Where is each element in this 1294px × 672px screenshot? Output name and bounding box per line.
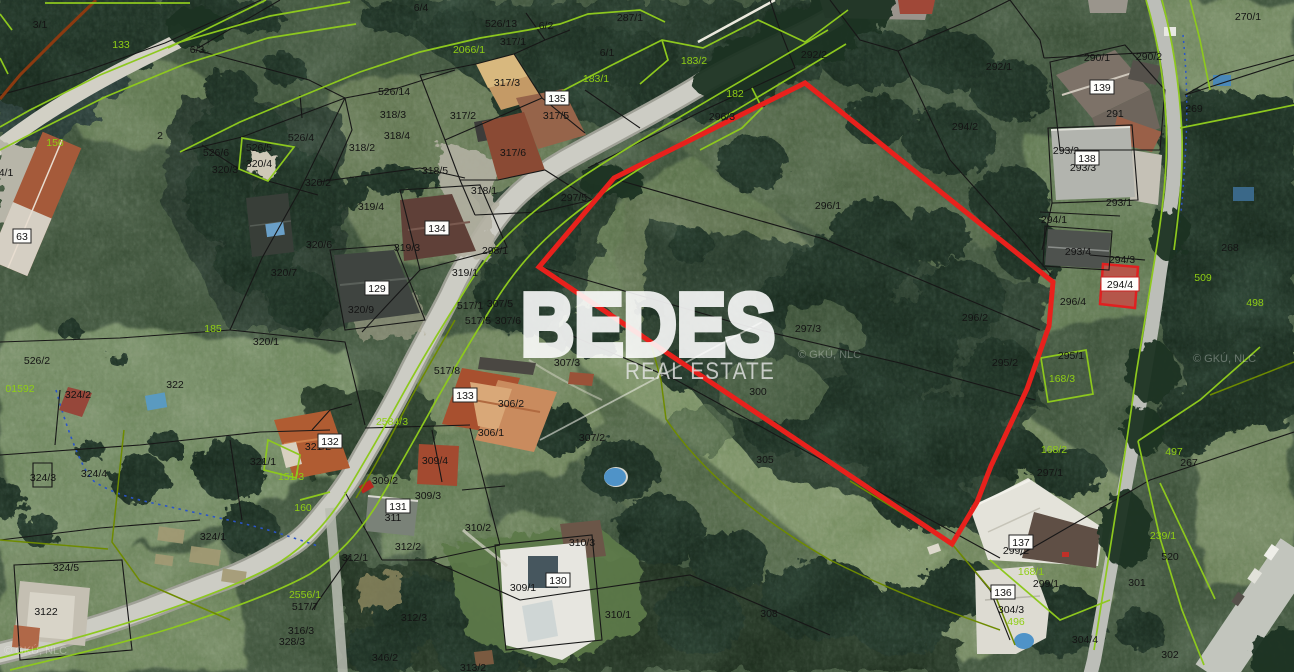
svg-text:136: 136 xyxy=(994,587,1012,599)
svg-text:310/1: 310/1 xyxy=(605,609,631,621)
svg-text:294/4: 294/4 xyxy=(1107,279,1133,291)
svg-text:309/2: 309/2 xyxy=(372,475,398,487)
svg-text:526/5: 526/5 xyxy=(246,142,272,154)
svg-text:318/5: 318/5 xyxy=(422,165,448,177)
svg-text:01592: 01592 xyxy=(5,383,34,395)
svg-text:311: 311 xyxy=(385,512,402,524)
svg-text:307/2: 307/2 xyxy=(579,432,605,444)
svg-text:269: 269 xyxy=(1185,103,1203,115)
svg-text:296/1: 296/1 xyxy=(815,200,841,212)
svg-text:139: 139 xyxy=(1093,82,1111,94)
svg-text:298/1: 298/1 xyxy=(482,245,508,257)
svg-text:318/4: 318/4 xyxy=(384,130,410,142)
svg-text:© GKÚ, NLC: © GKÚ, NLC xyxy=(798,348,861,361)
svg-text:2: 2 xyxy=(157,130,163,142)
svg-text:317/1: 317/1 xyxy=(500,36,526,48)
svg-text:317/5: 317/5 xyxy=(543,110,569,122)
svg-text:320/7: 320/7 xyxy=(271,267,297,279)
svg-text:312/2: 312/2 xyxy=(395,541,421,553)
svg-text:320/9: 320/9 xyxy=(348,304,374,316)
svg-text:317/2: 317/2 xyxy=(450,110,476,122)
svg-text:© GKÚ, NLC: © GKÚ, NLC xyxy=(4,644,67,657)
svg-text:© GKÚ, NLC: © GKÚ, NLC xyxy=(1193,352,1256,365)
svg-text:509: 509 xyxy=(1194,272,1212,284)
svg-text:2556/1: 2556/1 xyxy=(289,589,321,601)
svg-text:185: 185 xyxy=(204,323,222,335)
svg-text:294/2: 294/2 xyxy=(952,121,978,133)
svg-text:295/2: 295/2 xyxy=(992,357,1018,369)
svg-text:REAL ESTATE: REAL ESTATE xyxy=(625,358,775,385)
svg-text:130: 130 xyxy=(549,575,567,587)
svg-text:137: 137 xyxy=(1012,537,1030,549)
svg-text:526/6: 526/6 xyxy=(203,147,229,159)
svg-text:4/1: 4/1 xyxy=(0,167,13,179)
svg-text:324/4: 324/4 xyxy=(81,468,107,480)
svg-text:297/3: 297/3 xyxy=(795,323,821,335)
svg-text:320/1: 320/1 xyxy=(253,336,279,348)
svg-text:6/3: 6/3 xyxy=(190,44,205,56)
svg-text:320/2: 320/2 xyxy=(305,177,331,189)
svg-text:309/1: 309/1 xyxy=(510,582,536,594)
svg-text:317/3: 317/3 xyxy=(494,77,520,89)
svg-text:133: 133 xyxy=(112,39,130,51)
svg-text:308: 308 xyxy=(760,608,778,620)
svg-text:291: 291 xyxy=(1106,108,1124,120)
svg-text:297/1: 297/1 xyxy=(1037,467,1063,479)
svg-text:517/1: 517/1 xyxy=(457,300,483,312)
svg-text:131: 131 xyxy=(389,501,407,513)
svg-text:267: 267 xyxy=(1180,457,1198,469)
svg-text:306/1: 306/1 xyxy=(478,427,504,439)
svg-text:135: 135 xyxy=(548,93,566,105)
svg-text:183/1: 183/1 xyxy=(583,73,609,85)
svg-text:2584/3: 2584/3 xyxy=(376,416,408,428)
svg-text:517/8: 517/8 xyxy=(434,365,460,377)
svg-text:294/1: 294/1 xyxy=(1041,214,1067,226)
svg-text:129: 129 xyxy=(368,283,386,295)
svg-text:346/2: 346/2 xyxy=(372,652,398,664)
svg-text:168/3: 168/3 xyxy=(1049,373,1075,385)
svg-text:304/4: 304/4 xyxy=(1072,634,1098,646)
svg-text:302: 302 xyxy=(1161,649,1179,661)
svg-text:134: 134 xyxy=(428,223,446,235)
svg-text:300: 300 xyxy=(749,386,767,398)
svg-text:183/2: 183/2 xyxy=(681,55,707,67)
svg-text:318/2: 318/2 xyxy=(349,142,375,154)
svg-text:317/6: 317/6 xyxy=(500,147,526,159)
svg-text:526/4: 526/4 xyxy=(288,132,314,144)
svg-text:182: 182 xyxy=(726,88,744,100)
svg-text:290/1: 290/1 xyxy=(1084,52,1110,64)
svg-text:292/2: 292/2 xyxy=(801,49,827,61)
svg-text:268: 268 xyxy=(1221,242,1239,254)
svg-text:320/3: 320/3 xyxy=(212,164,238,176)
svg-text:318/3: 318/3 xyxy=(380,109,406,121)
svg-text:293/1: 293/1 xyxy=(1106,197,1132,209)
svg-text:526/2: 526/2 xyxy=(24,355,50,367)
svg-text:310/2: 310/2 xyxy=(465,522,491,534)
svg-text:324/5: 324/5 xyxy=(53,562,79,574)
svg-text:292/1: 292/1 xyxy=(986,61,1012,73)
svg-text:520: 520 xyxy=(1161,551,1179,563)
svg-text:2066/1: 2066/1 xyxy=(453,44,485,56)
svg-text:498: 498 xyxy=(1246,297,1264,309)
svg-text:297/5: 297/5 xyxy=(561,192,587,204)
svg-text:160: 160 xyxy=(294,502,312,514)
svg-text:305: 305 xyxy=(756,454,774,466)
svg-text:322: 322 xyxy=(166,379,184,391)
svg-text:6/2: 6/2 xyxy=(539,20,554,32)
svg-text:294/3: 294/3 xyxy=(1109,254,1135,266)
svg-text:239/1: 239/1 xyxy=(1150,530,1176,542)
svg-text:497: 497 xyxy=(1165,446,1183,458)
svg-text:517/5: 517/5 xyxy=(465,315,491,327)
svg-text:309/4: 309/4 xyxy=(422,455,448,467)
svg-text:6/1: 6/1 xyxy=(600,47,615,59)
svg-text:295/1: 295/1 xyxy=(1058,350,1084,362)
svg-text:168/1: 168/1 xyxy=(1018,566,1044,578)
svg-text:319/3: 319/3 xyxy=(394,242,420,254)
svg-text:526/13: 526/13 xyxy=(485,18,517,30)
svg-text:313/2: 313/2 xyxy=(460,662,486,672)
svg-text:3122: 3122 xyxy=(34,606,58,618)
svg-text:296/2: 296/2 xyxy=(962,312,988,324)
svg-text:133: 133 xyxy=(456,390,474,402)
svg-text:496: 496 xyxy=(1007,616,1025,628)
svg-text:319/4: 319/4 xyxy=(358,201,384,213)
svg-text:287/1: 287/1 xyxy=(617,12,643,24)
svg-text:290/2: 290/2 xyxy=(1136,51,1162,63)
svg-text:6/4: 6/4 xyxy=(414,2,429,14)
svg-text:320/6: 320/6 xyxy=(306,239,332,251)
svg-text:307/6: 307/6 xyxy=(495,315,521,327)
svg-text:324/3: 324/3 xyxy=(30,472,56,484)
svg-text:270/1: 270/1 xyxy=(1235,11,1261,23)
svg-text:301: 301 xyxy=(1128,577,1146,589)
svg-text:312/1: 312/1 xyxy=(342,552,368,564)
svg-text:293/4: 293/4 xyxy=(1065,246,1091,258)
svg-text:151/3: 151/3 xyxy=(278,471,304,483)
svg-text:312/3: 312/3 xyxy=(401,612,427,624)
svg-text:138: 138 xyxy=(1078,153,1096,165)
svg-text:328/3: 328/3 xyxy=(279,636,305,648)
svg-text:168/2: 168/2 xyxy=(1041,444,1067,456)
svg-text:296/4: 296/4 xyxy=(1060,296,1086,308)
svg-text:304/3: 304/3 xyxy=(998,604,1024,616)
svg-text:63: 63 xyxy=(16,231,28,243)
svg-text:310/3: 310/3 xyxy=(569,537,595,549)
svg-text:324/2: 324/2 xyxy=(65,389,91,401)
svg-text:299/1: 299/1 xyxy=(1033,578,1059,590)
svg-text:517/7: 517/7 xyxy=(292,601,318,613)
svg-text:307/5: 307/5 xyxy=(487,298,513,310)
svg-text:306/2: 306/2 xyxy=(498,398,524,410)
svg-text:309/3: 309/3 xyxy=(415,490,441,502)
svg-text:318/1: 318/1 xyxy=(471,185,497,197)
svg-text:319/1: 319/1 xyxy=(452,267,478,279)
svg-text:132: 132 xyxy=(321,436,339,448)
svg-text:3/1: 3/1 xyxy=(33,19,48,31)
svg-text:296/3: 296/3 xyxy=(709,111,735,123)
svg-text:526/14: 526/14 xyxy=(378,86,410,98)
svg-text:156: 156 xyxy=(46,137,64,149)
svg-text:324/1: 324/1 xyxy=(200,531,226,543)
svg-text:321/1: 321/1 xyxy=(250,456,276,468)
svg-text:320/4: 320/4 xyxy=(246,158,272,170)
